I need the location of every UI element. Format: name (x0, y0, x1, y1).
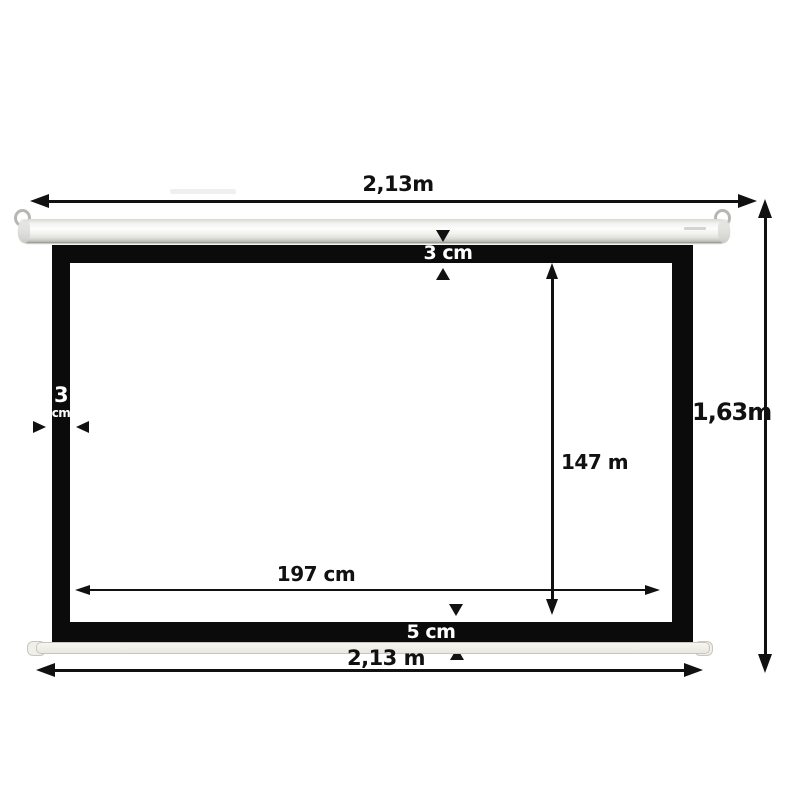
arrowhead-down-icon (758, 654, 772, 673)
dimension-line (48, 669, 691, 672)
housing-brand-print (684, 227, 706, 230)
marker-right-icon (33, 421, 46, 433)
top-width-dimension-arrow (30, 194, 757, 208)
dimension-line (764, 211, 767, 661)
top-border-label: 3 cm (403, 244, 493, 263)
arrowhead-right-icon (738, 194, 757, 208)
screen-housing (18, 219, 730, 243)
dimension-line (85, 589, 650, 591)
inner-width-label: 197 cm (246, 562, 386, 586)
dimension-line (42, 200, 745, 203)
top-width-label: 2,13m (328, 172, 468, 196)
marker-down-icon (449, 604, 463, 616)
housing-endcap-left (18, 219, 30, 243)
inner-height-dimension-arrow (545, 263, 559, 615)
bottom-border-label: 5 cm (386, 621, 476, 643)
right-height-label: 1,63m (692, 398, 771, 426)
marker-up-icon (436, 268, 450, 280)
left-border-unit-label: cm (50, 407, 72, 420)
inner-height-label: 147 m (561, 450, 628, 474)
arrowhead-left-icon (36, 663, 55, 677)
left-border-value-label: 3 (50, 384, 72, 407)
inner-width-dimension-arrow (75, 584, 660, 596)
housing-endcap-right (718, 219, 730, 243)
marker-left-icon (76, 421, 89, 433)
arrowhead-up-icon (546, 263, 558, 279)
marker-down-icon (436, 230, 450, 242)
right-height-dimension-arrow (758, 199, 772, 673)
dimension-line (551, 273, 554, 605)
bottom-width-dimension-arrow (36, 663, 703, 677)
arrowhead-left-icon (75, 585, 90, 595)
arrowhead-right-icon (684, 663, 703, 677)
screen-dimension-diagram: 2,13m 3 cm 3 cm 147 m 197 cm 5 cm (0, 0, 800, 800)
arrowhead-right-icon (645, 585, 660, 595)
arrowhead-up-icon (758, 199, 772, 218)
arrowhead-down-icon (546, 599, 558, 615)
arrowhead-left-icon (30, 194, 49, 208)
